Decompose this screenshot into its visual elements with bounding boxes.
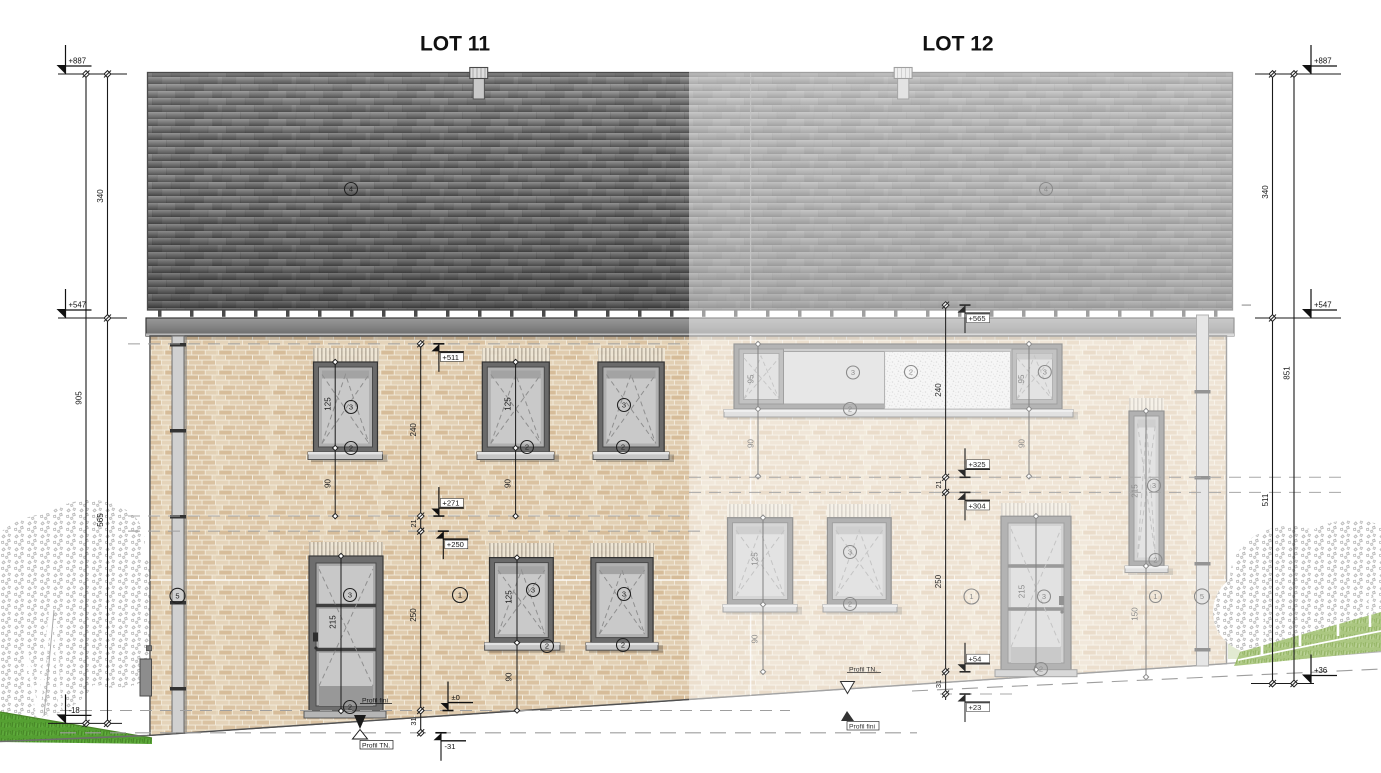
svg-text:240: 240 [934,383,943,397]
svg-text:90: 90 [504,479,513,488]
svg-text:565: 565 [96,513,105,527]
svg-text:+547: +547 [69,301,87,310]
svg-text:5: 5 [175,592,179,601]
svg-text:LOT 12: LOT 12 [922,33,993,56]
svg-text:21: 21 [409,519,418,527]
svg-text:3: 3 [622,401,626,410]
svg-text:+887: +887 [1314,57,1332,66]
svg-text:+271: +271 [442,499,459,508]
svg-text:340: 340 [1261,185,1270,199]
svg-text:+54: +54 [969,654,982,663]
svg-text:2: 2 [525,443,529,452]
svg-text:4: 4 [349,185,353,194]
svg-text:±0: ±0 [452,693,460,702]
svg-text:-31: -31 [445,742,456,751]
svg-text:90: 90 [324,479,333,488]
svg-text:511: 511 [1261,493,1270,506]
svg-text:1: 1 [458,591,462,600]
svg-text:215: 215 [329,615,338,629]
svg-text:2: 2 [348,703,352,712]
svg-text:Profil TN.: Profil TN. [362,743,390,750]
svg-text:+547: +547 [1314,301,1332,310]
svg-text:+325: +325 [969,460,986,469]
svg-text:250: 250 [409,608,418,622]
svg-text:Profil fini: Profil fini [849,724,876,731]
svg-text:+23: +23 [969,703,982,712]
svg-text:+887: +887 [69,57,87,66]
svg-text:21: 21 [934,480,943,488]
svg-text:90: 90 [505,672,514,681]
svg-text:+304: +304 [969,501,986,510]
svg-text:31: 31 [409,717,418,725]
svg-text:2: 2 [545,642,549,651]
svg-text:+250: +250 [447,540,464,549]
svg-text:31: 31 [934,680,943,688]
svg-text:240: 240 [409,423,418,437]
svg-text:+511: +511 [442,353,459,362]
svg-text:2: 2 [621,443,625,452]
svg-text:2: 2 [621,641,625,650]
svg-text:905: 905 [75,391,84,405]
svg-text:3: 3 [348,591,352,600]
svg-text:3: 3 [622,590,626,599]
svg-text:3: 3 [349,403,353,412]
svg-text:340: 340 [96,189,105,203]
svg-text:125: 125 [504,397,513,411]
svg-text:3: 3 [531,586,535,595]
svg-text:125: 125 [505,590,514,604]
svg-text:-18: -18 [69,706,80,715]
svg-text:851: 851 [1283,366,1292,380]
svg-text:+36: +36 [1314,666,1327,675]
svg-text:2: 2 [349,444,353,453]
svg-text:+565: +565 [969,314,986,323]
svg-text:250: 250 [934,574,943,588]
svg-text:LOT 11: LOT 11 [420,33,490,56]
svg-text:125: 125 [324,397,333,411]
